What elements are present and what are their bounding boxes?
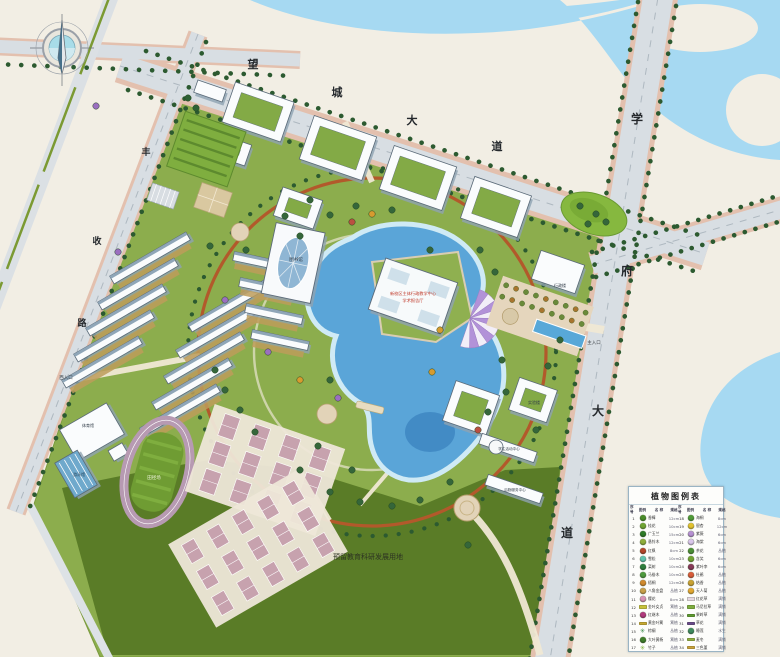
legend-no: 23 [679, 556, 684, 561]
legend-spec: 8cm [718, 516, 726, 521]
site-label: 实验楼 [528, 399, 540, 405]
legend-no: 33 [679, 637, 684, 642]
tree [577, 203, 583, 209]
tree [282, 213, 288, 219]
legend-plant-name: 结香 [696, 580, 704, 586]
tree [427, 247, 433, 253]
site-label: 西入口 [59, 375, 73, 381]
tree [243, 247, 249, 253]
legend-no: 29 [679, 605, 684, 610]
plant-legend-panel: 植物图例表 序号图例名 称规格序号图例名 称规格1香樟12cm18海桐8cm2桂… [628, 486, 724, 652]
tree [297, 233, 303, 239]
road-label: 大 [592, 403, 604, 418]
legend-spec: 6cm [718, 532, 726, 537]
legend-plant-icon [687, 646, 695, 650]
legend-spec: 丛植 [670, 612, 678, 618]
site-label: 主入口 [587, 339, 601, 346]
legend-header: 图例 [687, 508, 694, 513]
legend-spec: 篱植 [670, 604, 678, 610]
road-label: 丰 [141, 146, 150, 158]
legend-plant-icon [640, 515, 646, 521]
road-label: 城 [332, 85, 343, 99]
tree [327, 489, 333, 495]
tree [499, 357, 505, 363]
site-label: 图书馆 [289, 256, 303, 263]
legend-plant-name: 广玉兰 [648, 531, 659, 537]
tree [207, 243, 213, 249]
legend-spec: 丛植 [670, 588, 678, 594]
legend-spec: 丛植 [718, 580, 726, 586]
tree [222, 387, 228, 393]
legend-plant-name: 大叶黄杨 [648, 637, 663, 643]
tree [389, 207, 395, 213]
legend-spec: 10cm [669, 556, 680, 561]
legend-no: 7 [632, 564, 634, 569]
legend-plant-icon [640, 556, 646, 562]
legend-plant-name: 桂花 [648, 523, 656, 529]
legend-no: 17 [631, 645, 636, 650]
legend-no: 1 [632, 516, 634, 521]
legend-no: 27 [679, 588, 684, 593]
legend-spec: 10cm [669, 572, 680, 577]
legend-plant-name: 香樟 [648, 515, 656, 521]
legend-header: 名 称 [655, 508, 663, 513]
legend-spec: 满铺 [718, 637, 726, 643]
tree [349, 467, 355, 473]
legend-header: 序号 [678, 505, 685, 515]
legend-plant-name: 樱花 [648, 596, 656, 602]
legend-spec: 满铺 [718, 620, 726, 626]
legend-plant-icon [688, 564, 694, 570]
legend-plant-name: 金叶女贞 [648, 604, 663, 610]
legend-spec: 10cm [669, 564, 680, 569]
legend-plant-name: 栾树 [648, 564, 656, 570]
tree [545, 363, 551, 369]
legend-plant-icon [688, 523, 694, 529]
legend-spec: 6cm [718, 564, 726, 569]
legend-plant-icon [640, 580, 646, 586]
site-label: 行政楼 [554, 282, 566, 288]
site-label: 田径场 [147, 474, 161, 481]
legend-no: 9 [632, 580, 634, 585]
legend-plant-icon [688, 588, 694, 594]
legend-plant-icon [640, 564, 646, 570]
legend-no: 20 [679, 532, 684, 537]
tree [557, 337, 563, 343]
legend-plant-name: 睡莲 [696, 628, 704, 634]
legend-no: 11 [631, 597, 636, 602]
legend-plant-icon [639, 622, 647, 626]
legend-no: 34 [679, 645, 684, 650]
legend-plant-name: 八角金盘 [648, 588, 663, 594]
tree [357, 499, 363, 505]
legend-spec: 6cm [718, 540, 726, 545]
road-label: 大 [407, 113, 418, 127]
tree [417, 497, 423, 503]
legend-plant-name: 红枫 [648, 548, 656, 554]
legend-no: 12 [631, 605, 636, 610]
legend-spec: 满铺 [718, 645, 726, 651]
legend-spec: 满铺 [718, 596, 726, 602]
legend-plant-icon [688, 531, 694, 537]
legend-plant-name: 雪松 [648, 556, 656, 562]
legend-spec: 10cm [669, 524, 680, 529]
legend-plant-name: 三色堇 [696, 645, 707, 651]
legend-header: 规格 [670, 508, 677, 513]
legend-plant-name: 海棠 [696, 539, 704, 545]
tree [429, 369, 435, 375]
legend-spec: 8cm [670, 597, 678, 602]
road-label: 道 [492, 139, 503, 153]
tree [212, 367, 218, 373]
tree [265, 349, 271, 355]
legend-no: 18 [679, 516, 684, 521]
site-label: 游泳馆 [73, 471, 85, 477]
legend-plant-name: 果岭草 [696, 612, 707, 618]
tree [603, 219, 609, 225]
tree [585, 221, 591, 227]
legend-plant-name: 海桐 [696, 515, 704, 521]
site-label: 体育馆 [82, 422, 94, 428]
legend-no: 19 [679, 524, 684, 529]
site-label: 学生活动中心 [498, 446, 520, 451]
legend-plant-icon [640, 572, 646, 578]
road-label: 学 [631, 111, 643, 126]
legend-plant-name: 梧桐 [648, 580, 656, 586]
road-label: 收 [92, 235, 101, 247]
tree [237, 407, 243, 413]
legend-header: 名 称 [703, 508, 711, 513]
legend-no: 25 [679, 572, 684, 577]
legend-no: 15 [631, 629, 636, 634]
legend-plant-name: 悬铃木 [648, 539, 659, 545]
legend-plant-name: 红继木 [648, 612, 659, 618]
legend-plant-name: 竹子 [648, 645, 656, 651]
tree [389, 503, 395, 509]
legend-no: 10 [631, 588, 636, 593]
legend-plant-icon [688, 548, 694, 554]
legend-plant-icon [688, 580, 694, 586]
tree [193, 105, 199, 111]
tree [437, 327, 443, 333]
legend-plant-name: 棕榈 [648, 628, 656, 634]
legend-no: 32 [679, 629, 684, 634]
tree [297, 467, 303, 473]
legend-plant-icon [688, 515, 694, 521]
road-label: 道 [561, 525, 573, 540]
tree [185, 95, 191, 101]
legend-spec: 6cm [718, 556, 726, 561]
tree [307, 197, 313, 203]
legend-plant-icon: ✳ [640, 645, 645, 651]
tree [485, 409, 491, 415]
tree [222, 297, 228, 303]
legend-table: 序号图例名 称规格序号图例名 称规格1香樟12cm18海桐8cm2桂花10cm1… [629, 505, 723, 652]
legend-no: 31 [679, 621, 684, 626]
legend-no: 6 [632, 556, 634, 561]
legend-spec: 篱植 [670, 637, 678, 643]
legend-plant-icon [687, 605, 695, 609]
legend-plant-icon [688, 628, 694, 634]
tree [593, 211, 599, 217]
tree [353, 203, 359, 209]
legend-spec: 丛植 [718, 572, 726, 578]
site-label: 后勤服务中心 [504, 487, 526, 492]
legend-spec: 丛植 [718, 588, 726, 594]
legend-plant-icon [687, 597, 695, 601]
legend-plant-icon [639, 605, 647, 609]
tree [369, 211, 375, 217]
legend-no: 4 [632, 540, 634, 545]
legend-spec: 12cm [669, 580, 680, 585]
tree [477, 247, 483, 253]
legend-plant-name: 紫薇 [696, 531, 704, 537]
legend-no: 14 [631, 621, 636, 626]
tree [492, 269, 498, 275]
tree [297, 377, 303, 383]
legend-no: 3 [632, 532, 634, 537]
legend-plant-icon: ✳ [640, 628, 645, 634]
legend-plant-icon [640, 531, 646, 537]
legend-spec: 12cm [717, 524, 728, 529]
legend-header: 规格 [718, 508, 725, 513]
site-label: 学术报告厅 [403, 297, 424, 304]
legend-plant-icon [687, 614, 695, 618]
legend-spec: 丛植 [718, 548, 726, 554]
legend-plant-name: 杜鹃 [696, 572, 704, 578]
tree [465, 542, 471, 548]
legend-spec: 12cm [669, 516, 680, 521]
legend-plant-name: 红花草 [696, 596, 707, 602]
site-label: 新校区主体行政教学中心 [390, 290, 437, 297]
legend-plant-name: 茶花 [696, 548, 704, 554]
legend-no: 13 [631, 613, 636, 618]
legend-no: 21 [679, 540, 684, 545]
legend-plant-name: 草花 [696, 620, 704, 626]
tree [349, 219, 355, 225]
legend-plant-icon [640, 588, 646, 594]
legend-plant-icon [640, 596, 646, 602]
legend-plant-icon [640, 523, 646, 529]
road-label: 望 [248, 57, 259, 71]
legend-plant-name: 天人菊 [696, 588, 707, 594]
legend-plant-name: 黄金叶篱 [648, 620, 663, 626]
legend-plant-icon [688, 556, 694, 562]
legend-plant-icon [640, 548, 646, 554]
legend-plant-name: 紫叶李 [696, 564, 707, 570]
legend-spec: 篱植 [670, 620, 678, 626]
legend-plant-icon [640, 612, 646, 618]
legend-plant-name: 银杏 [696, 523, 704, 529]
legend-plant-name: 含笑 [696, 556, 704, 562]
legend-spec: 8cm [670, 548, 678, 553]
legend-plant-icon [687, 622, 695, 626]
tree [533, 427, 539, 433]
legend-spec: 满铺 [718, 604, 726, 610]
tree [327, 212, 333, 218]
site-label: 预留教育科研发展用地 [333, 552, 403, 561]
road-label: 府 [621, 263, 633, 278]
legend-spec: 水生 [718, 628, 726, 634]
legend-plant-name: 马褂木 [648, 572, 659, 578]
tree [475, 427, 481, 433]
legend-header: 图例 [639, 508, 646, 513]
tree [252, 429, 258, 435]
legend-header: 序号 [630, 505, 637, 515]
tree [315, 443, 321, 449]
legend-plant-icon [640, 637, 646, 643]
legend-plant-icon [688, 539, 694, 545]
legend-spec: 丛植 [670, 645, 678, 651]
legend-no: 5 [632, 548, 634, 553]
tree [93, 103, 99, 109]
legend-plant-name: 马尼拉草 [696, 604, 711, 610]
legend-no: 16 [631, 637, 636, 642]
legend-plant-icon [687, 638, 695, 642]
tree [503, 389, 509, 395]
legend-spec: 丛植 [670, 628, 678, 634]
legend-spec: 12cm [669, 540, 680, 545]
tree [335, 395, 341, 401]
road-label: 路 [77, 317, 87, 329]
legend-title: 植物图例表 [629, 487, 723, 505]
legend-no: 8 [632, 572, 634, 577]
legend-no: 26 [679, 580, 684, 585]
legend-plant-icon [688, 572, 694, 578]
legend-no: 24 [679, 564, 684, 569]
legend-no: 22 [679, 548, 684, 553]
campus-master-plan: 望城大道学府大道丰收路 预留教育科研发展用地主入口西入口图书馆行政楼体育馆游泳馆… [0, 0, 780, 657]
legend-no: 2 [632, 524, 634, 529]
tree [115, 249, 121, 255]
legend-spec: 15cm [669, 532, 680, 537]
tree [447, 479, 453, 485]
legend-plant-name: 麦冬 [696, 637, 704, 643]
legend-spec: 满铺 [718, 612, 726, 618]
legend-no: 28 [679, 597, 684, 602]
legend-plant-icon [640, 539, 646, 545]
legend-no: 30 [679, 613, 684, 618]
tree [327, 377, 333, 383]
